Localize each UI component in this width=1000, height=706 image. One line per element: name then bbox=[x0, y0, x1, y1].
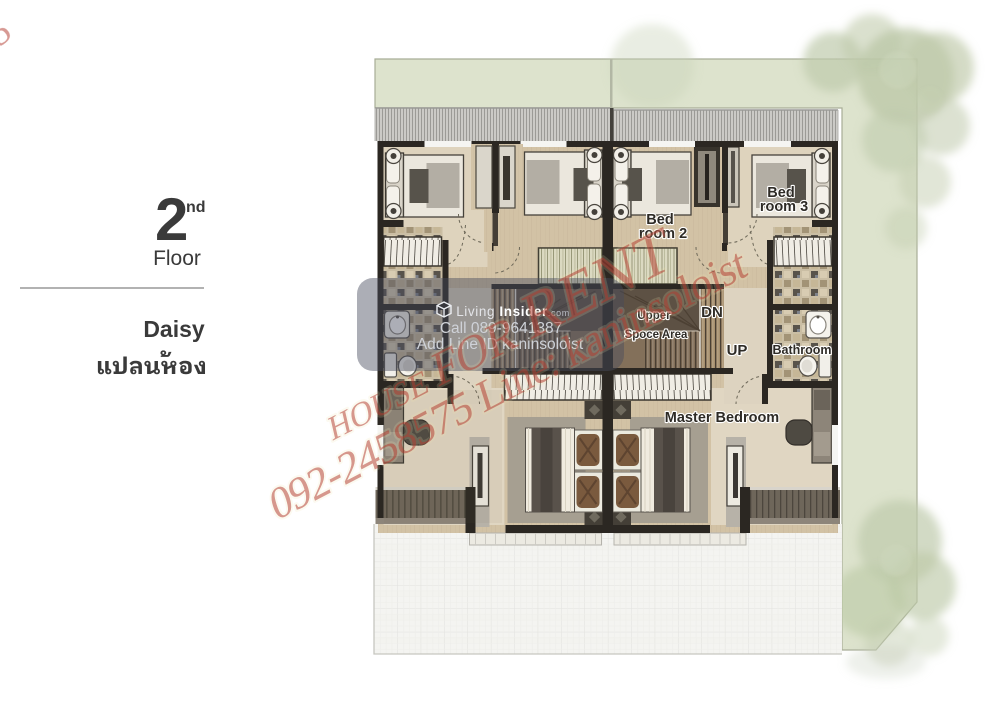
svg-text:Daisy: Daisy bbox=[143, 316, 205, 342]
svg-text:2: 2 bbox=[155, 186, 188, 253]
svg-text:Master Bedroom: Master Bedroom bbox=[665, 410, 779, 426]
svg-text:room 3: room 3 bbox=[760, 199, 808, 215]
svg-text:UP: UP bbox=[727, 342, 748, 359]
svg-text:Bathroom: Bathroom bbox=[772, 343, 831, 357]
svg-text:nd: nd bbox=[186, 199, 206, 216]
svg-text:Floor: Floor bbox=[153, 247, 201, 270]
